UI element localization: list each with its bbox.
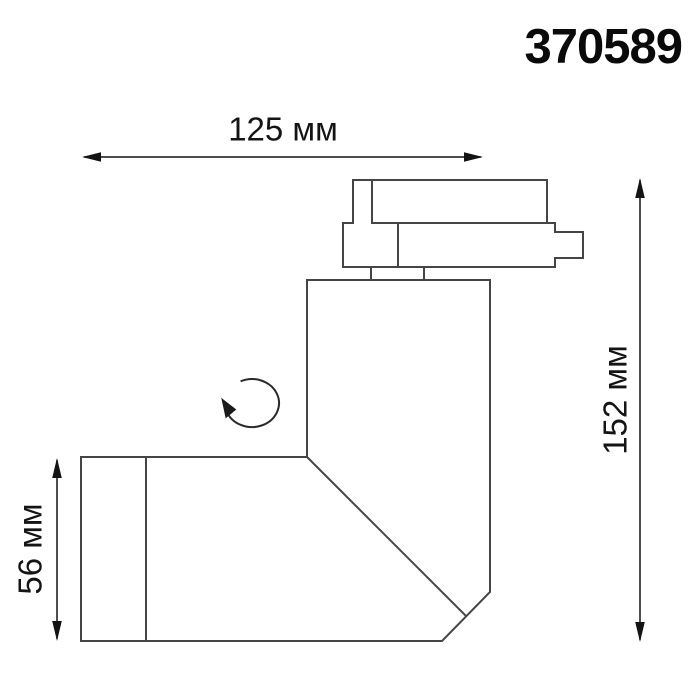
body-height-dimension-arrow bbox=[52, 458, 62, 641]
technical-drawing-page: 370589 125 мм 152 мм 56 мм bbox=[0, 0, 700, 700]
track-adapter-drawing bbox=[343, 180, 583, 280]
track-spotlight-drawing bbox=[0, 0, 700, 700]
height-dimension-arrow bbox=[635, 178, 645, 642]
rotation-arrow-icon bbox=[222, 379, 279, 427]
lamp-body-drawing bbox=[81, 280, 490, 641]
width-dimension-arrow bbox=[82, 152, 483, 162]
